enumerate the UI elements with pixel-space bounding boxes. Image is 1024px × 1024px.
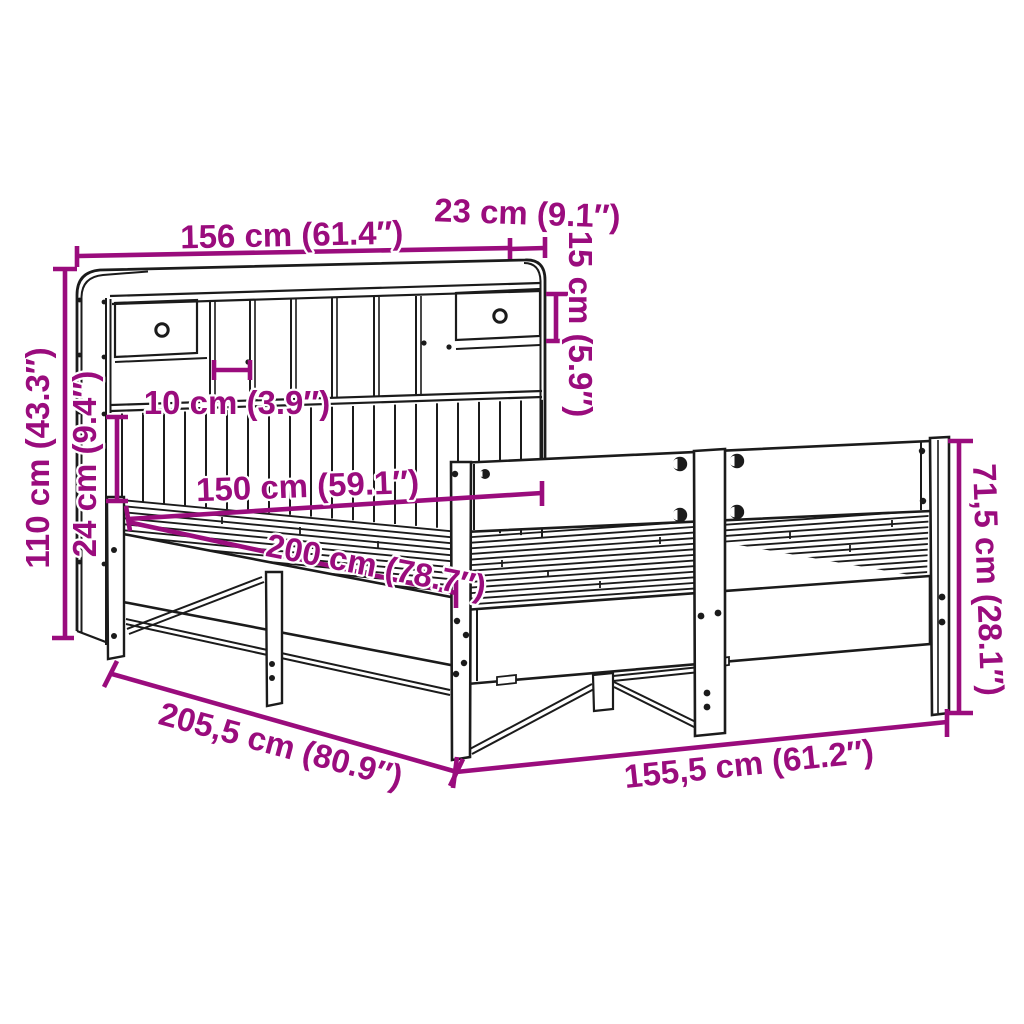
- svg-text:23 cm (9.1″): 23 cm (9.1″): [434, 191, 622, 234]
- svg-text:24 cm (9.4″): 24 cm (9.4″): [66, 371, 103, 557]
- svg-text:110 cm (43.3″): 110 cm (43.3″): [19, 347, 56, 568]
- svg-text:10 cm (3.9″): 10 cm (3.9″): [144, 384, 330, 421]
- svg-text:156 cm (61.4″): 156 cm (61.4″): [180, 214, 404, 256]
- svg-text:15 cm (5.9″): 15 cm (5.9″): [562, 231, 599, 417]
